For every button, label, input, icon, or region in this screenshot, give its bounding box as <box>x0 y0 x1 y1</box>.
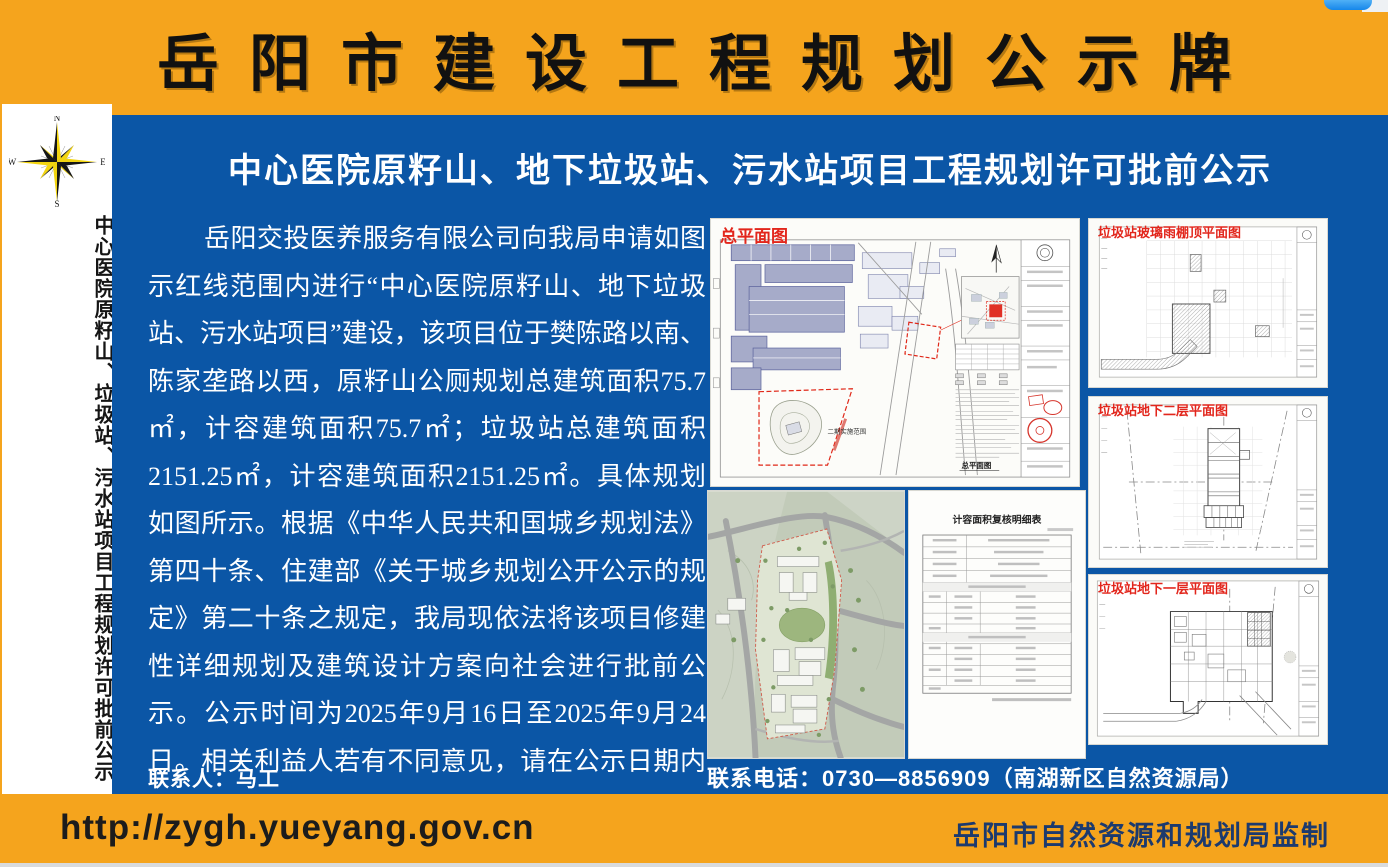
aerial-rendering-figure <box>707 490 905 759</box>
sidebar: N S E W 中心医院原籽山、垃圾站、污水站项目工程规划许可批前公示 <box>2 104 112 794</box>
compass-e-label: E <box>100 157 105 167</box>
basement2-plan-label: 垃圾站地下二层平面图 <box>1098 400 1228 419</box>
compass-w-label: W <box>9 157 17 167</box>
master-plan-label: 总平面图 <box>720 222 788 247</box>
compass-rose-icon: N S E W <box>9 116 105 208</box>
basement2-plan-drawing <box>1089 397 1327 567</box>
compass-icon: N S E W <box>9 116 105 208</box>
compass-s-label: S <box>54 199 59 208</box>
canopy-plan-drawing <box>1089 219 1327 387</box>
canopy-plan-label: 垃圾站玻璃雨棚顶平面图 <box>1098 222 1241 241</box>
basement2-plan-figure: 垃圾站地下二层平面图 <box>1088 396 1328 568</box>
canopy-plan-figure: 垃圾站玻璃雨棚顶平面图 <box>1088 218 1328 388</box>
master-plan-figure: 总平面图 <box>710 218 1080 487</box>
contact-person: 联系人：马工 <box>148 763 280 793</box>
notice-title: 中心医院原籽山、地下垃圾站、污水站项目工程规划许可批前公示 <box>112 143 1388 192</box>
area-table-figure: 计容面积复核明细表 <box>908 490 1086 759</box>
footer-band: http://zygh.yueyang.gov.cn 岳阳市自然资源和规划局监制 <box>0 794 1388 867</box>
master-plan-drawing: 二期实施范围 <box>711 219 1079 486</box>
aerial-rendering-image <box>708 491 904 758</box>
sidebar-vertical-title: 中心医院原籽山、垃圾站、污水站项目工程规划许可批前公示 <box>2 208 112 788</box>
footer-url: http://zygh.yueyang.gov.cn <box>60 808 535 848</box>
board-title: 岳阳市建设工程规划公示牌 <box>127 13 1261 103</box>
footer-supervision: 岳阳市自然资源和规划局监制 <box>953 814 1330 853</box>
notice-board: 岳阳市建设工程规划公示牌 <box>0 0 1388 867</box>
basement1-plan-drawing <box>1089 575 1327 744</box>
basement1-plan-figure: 垃圾站地下一层平面图 <box>1088 574 1328 745</box>
header-band: 岳阳市建设工程规划公示牌 <box>0 0 1388 115</box>
main-area: 中心医院原籽山、地下垃圾站、污水站项目工程规划许可批前公示 岳阳交投医养服务有限… <box>112 115 1388 794</box>
basement1-plan-label: 垃圾站地下一层平面图 <box>1098 578 1228 597</box>
master-plan-caption: 总平面图 <box>962 460 992 470</box>
notice-body-paragraph: 岳阳交投医养服务有限公司向我局申请如图示红线范围内进行“中心医院原籽山、地下垃圾… <box>148 215 706 747</box>
area-table-image: 计容面积复核明细表 <box>909 491 1085 758</box>
bottom-edge <box>0 863 1388 867</box>
compass-n-label: N <box>54 116 61 123</box>
contact-phone: 联系电话：0730—8856909（南湖新区自然资源局） <box>707 761 1244 793</box>
area-table-title: 计容面积复核明细表 <box>953 513 1042 526</box>
blue-tab-icon <box>1324 0 1372 10</box>
phase2-annotation: 二期实施范围 <box>828 426 867 435</box>
